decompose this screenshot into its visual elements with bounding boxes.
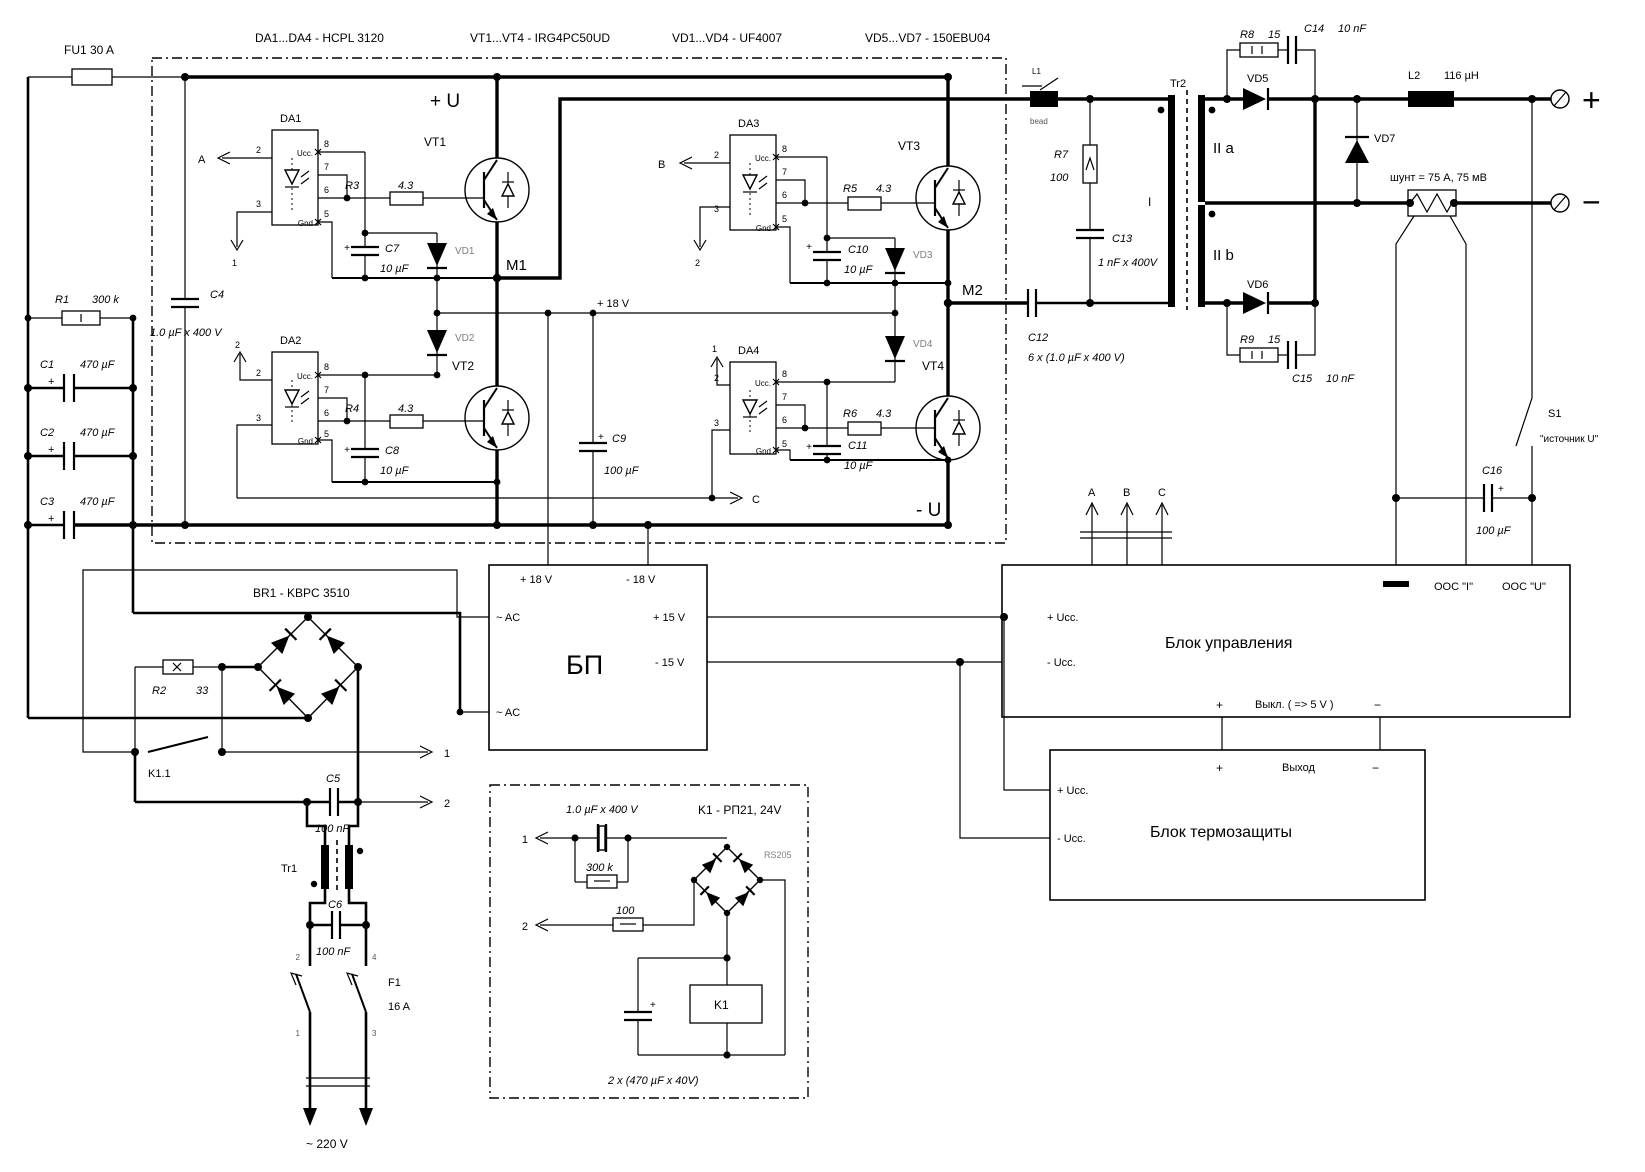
diode-vd4 [885, 336, 905, 359]
da3-label: DA3 [738, 118, 759, 130]
da3-ucc: Ucc. [755, 154, 771, 163]
ref-1: 1 [712, 344, 717, 354]
resistor-r9 [1240, 348, 1278, 362]
ctrl-ucc-plus: + Ucc. [1047, 612, 1078, 624]
inset-cap-value: 1.0 µF x 400 V [566, 804, 639, 816]
diode-vd5 [1243, 88, 1266, 110]
r100-label: 100 [616, 905, 635, 917]
signal-b-label: B [658, 159, 665, 171]
vt1-label: VT1 [424, 135, 446, 149]
resistor-r7 [1083, 145, 1097, 183]
pin2: 2 [256, 368, 261, 378]
tr2-label: Tr2 [1170, 78, 1186, 90]
c14-label: C14 [1304, 23, 1324, 35]
oos-u-label: ООС "U" [1502, 581, 1546, 593]
r3-value: 4.3 [398, 180, 414, 192]
pin6: 6 [782, 415, 787, 425]
diode-vd7 [1345, 140, 1369, 163]
k1-type-label: K1 - РП21, 24V [698, 803, 781, 817]
da2-label: DA2 [280, 335, 301, 347]
control-unit: + Ucc. - Ucc. Блок управления ООС "I" ОО… [1002, 487, 1570, 717]
c15-value: 10 nF [1326, 373, 1355, 385]
pin8: 8 [782, 144, 787, 154]
inset-wire1: 1 [522, 834, 528, 846]
c3-label: C3 [40, 496, 55, 508]
da2-ucc: Ucc. [297, 372, 313, 381]
da2-gnd: Gnd [298, 437, 313, 446]
tr2-secondary-b [1198, 205, 1205, 307]
vd1-label: VD1 [455, 246, 475, 257]
da1-gnd: Gnd [298, 219, 313, 228]
ctrl-ucc-minus: - Ucc. [1047, 657, 1076, 669]
relay-inset-border [490, 785, 808, 1098]
c16-polarity: + [1498, 484, 1504, 495]
shunt-sense-right [1450, 216, 1466, 565]
plus-terminal-label: + [1582, 82, 1601, 118]
r1-value: 300 k [92, 294, 119, 306]
f1-pin2: 2 [296, 953, 301, 962]
pin7: 7 [324, 162, 329, 172]
pin3: 3 [714, 204, 719, 214]
c1-polarity: + [48, 376, 54, 388]
c9-value: 100 µF [604, 465, 640, 477]
pin3: 3 [714, 418, 719, 428]
relay-cap-polarity: + [650, 1000, 656, 1011]
r5-label: R5 [843, 183, 858, 195]
c1-value: 470 µF [80, 359, 116, 371]
wire1-label: 1 [444, 748, 450, 760]
driver-da2: DA2 Ucc. Gnd 8 7 6 5 2 3 2 R4 4.3 + C8 [234, 278, 497, 498]
tr1-winding-right [345, 845, 353, 889]
shunt-label: шунт = 75 A, 75 мВ [1390, 172, 1487, 184]
rs205-label: RS205 [764, 850, 792, 860]
vt3-label: VT3 [898, 139, 920, 153]
output-stage: L1 bead R7 100 C13 1 nF x 400V Tr2 I II … [1022, 23, 1601, 565]
vykl-label: Выкл. ( => 5 V ) [1255, 699, 1334, 711]
c8-value: 10 µF [380, 465, 410, 477]
abc-b: B [1123, 487, 1130, 499]
c7-value: 10 µF [380, 263, 410, 275]
c10-label: C10 [848, 244, 869, 256]
vd5-label: VD5 [1247, 73, 1268, 85]
c8-polarity: + [344, 445, 350, 456]
c8-label: C8 [385, 445, 400, 457]
vt4-label: VT4 [922, 359, 944, 373]
resistor-r4 [390, 415, 423, 428]
r9-value: 15 [1268, 334, 1281, 346]
ref-2: 2 [235, 340, 240, 350]
bp-ac1: ~ AC [496, 612, 520, 624]
ref-2: 2 [695, 258, 700, 268]
da4-gnd: Gnd [756, 447, 771, 456]
inductor-l2 [1408, 91, 1454, 107]
minus-terminal-label: − [1582, 184, 1601, 220]
f1-value: 16 A [388, 1001, 411, 1013]
pin5: 5 [782, 439, 787, 449]
s1-label: S1 [1548, 408, 1561, 420]
c9-label: C9 [612, 433, 626, 445]
bp-p15: + 15 V [653, 612, 686, 624]
ferrite-bead-l1 [1030, 91, 1058, 107]
da1-ucc: Ucc. [297, 149, 313, 158]
relay-inset: 1.0 µF x 400 V K1 - РП21, 24V 1 300 k 2 … [522, 803, 792, 1087]
aux-psu: + 18 V - 18 V ~ AC + 15 V БП - 15 V ~ AC [83, 565, 1050, 838]
therm-ucc-minus: - Ucc. [1057, 833, 1086, 845]
parts-legend: DA1...DA4 - HCPL 3120 VT1...VT4 - IRG4PC… [255, 31, 991, 45]
tr2-secondary-a [1198, 95, 1205, 202]
pin8: 8 [782, 369, 787, 379]
tr2-primary [1168, 95, 1175, 307]
pin6: 6 [782, 190, 787, 200]
oos-i-label: ООС "I" [1434, 581, 1473, 593]
bridge-rs205 [694, 847, 760, 913]
c7-polarity: + [344, 243, 350, 254]
s1-function-label: "источник U" [1540, 434, 1599, 445]
r2-value: 33 [196, 685, 209, 697]
k11-label: K1.1 [148, 768, 171, 780]
c4-value: 1.0 µF x 400 V [150, 327, 223, 339]
pin8: 8 [324, 362, 329, 372]
r300k-label: 300 k [586, 862, 613, 874]
igbt-vt3: VT3 [898, 139, 980, 230]
vd7-label: VD7 [1374, 133, 1395, 145]
r9-label: R9 [1240, 334, 1254, 346]
bp-title: БП [566, 650, 603, 680]
signal-a-label: A [198, 154, 206, 166]
vykl-minus: − [1374, 698, 1381, 712]
ground-icon [1383, 581, 1409, 587]
c13-label: C13 [1112, 233, 1133, 245]
power-inverter-schematic: DA1...DA4 - HCPL 3120 VT1...VT4 - IRG4PC… [0, 0, 1645, 1172]
c10-value: 10 µF [844, 264, 874, 276]
r6-value: 4.3 [876, 408, 892, 420]
winding-iib-label: II b [1213, 247, 1234, 264]
winding-i-label: I [1148, 195, 1151, 209]
pin3: 3 [256, 199, 261, 209]
c16-value: 100 µF [1476, 525, 1512, 537]
l1-label: L1 [1032, 67, 1041, 76]
pin5: 5 [324, 209, 329, 219]
fuse-fu1 [72, 69, 112, 85]
diode-vd6 [1243, 292, 1266, 314]
tr1-label: Tr1 [281, 863, 297, 875]
winding-iia-label: II a [1213, 140, 1235, 157]
pin6: 6 [324, 408, 329, 418]
r7-value: 100 [1050, 172, 1069, 184]
abc-a: A [1088, 487, 1096, 499]
legend-da: DA1...DA4 - HCPL 3120 [255, 31, 384, 45]
da3-gnd: Gnd [756, 224, 771, 233]
c9-polarity: + [598, 432, 604, 443]
r3-label: R3 [345, 180, 360, 192]
bp-m18: - 18 V [626, 574, 656, 586]
signal-c-label: C [752, 494, 760, 506]
diode-vd2 [427, 330, 447, 353]
m1-label: M1 [506, 257, 527, 274]
f1-label: F1 [388, 977, 401, 989]
c3-polarity: + [48, 513, 54, 525]
c11-polarity: + [806, 442, 812, 453]
c12-label: C12 [1028, 332, 1048, 344]
da4-label: DA4 [738, 345, 759, 357]
r7-label: R7 [1054, 149, 1069, 161]
c6-label: C6 [328, 899, 343, 911]
diode-vd1 [427, 243, 447, 266]
shunt-sense-left [1396, 216, 1414, 565]
bp-p18: + 18 V [520, 574, 553, 586]
vd2-label: VD2 [455, 333, 475, 344]
resistor-r8 [1240, 43, 1278, 57]
c13-value: 1 nF x 400V [1098, 257, 1159, 269]
c5-label: C5 [326, 773, 341, 785]
vd6-label: VD6 [1247, 279, 1268, 291]
c6-value: 100 nF [316, 946, 352, 958]
pin2: 2 [256, 145, 261, 155]
relay-caps-value: 2 x (470 µF x 40V) [607, 1075, 699, 1087]
mains-input: BR1 - KBPC 3510 R2 33 K1.1 1 2 C5 100 nF [28, 586, 450, 1151]
resistor-r2 [163, 660, 193, 674]
pin3: 3 [256, 413, 261, 423]
out-plus: + [1216, 761, 1223, 775]
minus-u-label: - U [916, 500, 941, 521]
mains-voltage-label: ~ 220 V [306, 1137, 348, 1151]
l2-label: L2 [1408, 70, 1420, 82]
k1-coil-label: K1 [714, 998, 729, 1012]
bp-m15: - 15 V [655, 657, 685, 669]
pin7: 7 [324, 385, 329, 395]
r2-label: R2 [152, 685, 166, 697]
f1-pin4: 4 [372, 953, 377, 962]
c4-label: C4 [210, 289, 224, 301]
igbt-vt1: VT1 [424, 135, 529, 222]
control-unit-title: Блок управления [1165, 635, 1292, 652]
da1-label: DA1 [280, 113, 301, 125]
br1-label: BR1 - KBPC 3510 [253, 586, 350, 600]
c12-value: 6 x (1.0 µF x 400 V) [1028, 352, 1125, 364]
c7-label: C7 [385, 243, 400, 255]
plus-u-label: + U [430, 91, 460, 112]
dc-input-section: FU1 30 A R1 300 k C1 470 µF + C2 470 µF … [28, 43, 224, 718]
c16-label: C16 [1482, 465, 1503, 477]
vd4-label: VD4 [913, 339, 933, 350]
tr1-winding-left [321, 845, 329, 889]
r1-label: R1 [55, 294, 69, 306]
out-minus: − [1372, 761, 1379, 775]
c2-value: 470 µF [80, 427, 116, 439]
r4-label: R4 [345, 403, 359, 415]
relay-contact-k11 [148, 737, 208, 752]
c15-label: C15 [1292, 373, 1313, 385]
pin7: 7 [782, 167, 787, 177]
resistor-r3 [390, 192, 423, 205]
vykl-plus: + [1216, 698, 1223, 712]
pin7: 7 [782, 392, 787, 402]
wire2-label: 2 [444, 798, 450, 810]
ref-1: 1 [232, 258, 237, 268]
r5-value: 4.3 [876, 183, 892, 195]
legend-vt: VT1...VT4 - IRG4PC50UD [470, 31, 610, 45]
r6-label: R6 [843, 408, 858, 420]
c2-polarity: + [48, 444, 54, 456]
out-label: Выход [1282, 762, 1315, 774]
legend-vd14: VD1...VD4 - UF4007 [672, 31, 782, 45]
c11-label: C11 [848, 440, 867, 452]
bead-label: bead [1030, 117, 1048, 126]
c3-value: 470 µF [80, 496, 116, 508]
m2-label: M2 [962, 282, 983, 299]
c1-label: C1 [40, 359, 54, 371]
pin8: 8 [324, 139, 329, 149]
fuse-fu1-label: FU1 30 A [64, 43, 114, 57]
pin2: 2 [714, 150, 719, 160]
c11-value: 10 µF [844, 460, 874, 472]
r4-value: 4.3 [398, 403, 414, 415]
plus18-label: + 18 V [597, 298, 630, 310]
c10-polarity: + [806, 242, 812, 253]
schematic-page: DA1...DA4 - HCPL 3120 VT1...VT4 - IRG4PC… [0, 0, 1645, 1172]
thermal-unit-title: Блок термозащиты [1150, 824, 1292, 841]
r8-value: 15 [1268, 29, 1281, 41]
f1-pin3: 3 [372, 1029, 377, 1038]
igbt-vt2: VT2 [452, 359, 529, 450]
pin5: 5 [782, 214, 787, 224]
breaker-pole-1 [296, 974, 310, 1012]
l2-value: 116 µH [1444, 70, 1479, 82]
c14-value: 10 nF [1338, 23, 1367, 35]
resistor-r6 [848, 422, 881, 435]
inset-wire2: 2 [522, 921, 528, 933]
bp-ac2: ~ AC [496, 707, 520, 719]
bridge-br1 [258, 617, 358, 718]
f1-pin1: 1 [296, 1029, 301, 1038]
driver-da4: DA4 Ucc. Gnd 8 7 6 5 2 3 1 R6 4.3 + C1 [711, 283, 948, 498]
thermal-unit: + Выход − + Ucc. - Ucc. Блок термозащиты [1050, 717, 1425, 900]
vt2-label: VT2 [452, 359, 474, 373]
r8-label: R8 [1240, 29, 1255, 41]
breaker-pole-2 [352, 974, 366, 1012]
vd3-label: VD3 [913, 250, 933, 261]
legend-vd57: VD5...VD7 - 150EBU04 [865, 31, 991, 45]
pin6: 6 [324, 185, 329, 195]
abc-c: C [1158, 487, 1166, 499]
diode-vd3 [885, 248, 905, 271]
therm-ucc-plus: + Ucc. [1057, 785, 1088, 797]
c2-label: C2 [40, 427, 54, 439]
da4-ucc: Ucc. [755, 379, 771, 388]
pin5: 5 [324, 429, 329, 439]
resistor-r5 [848, 197, 881, 210]
